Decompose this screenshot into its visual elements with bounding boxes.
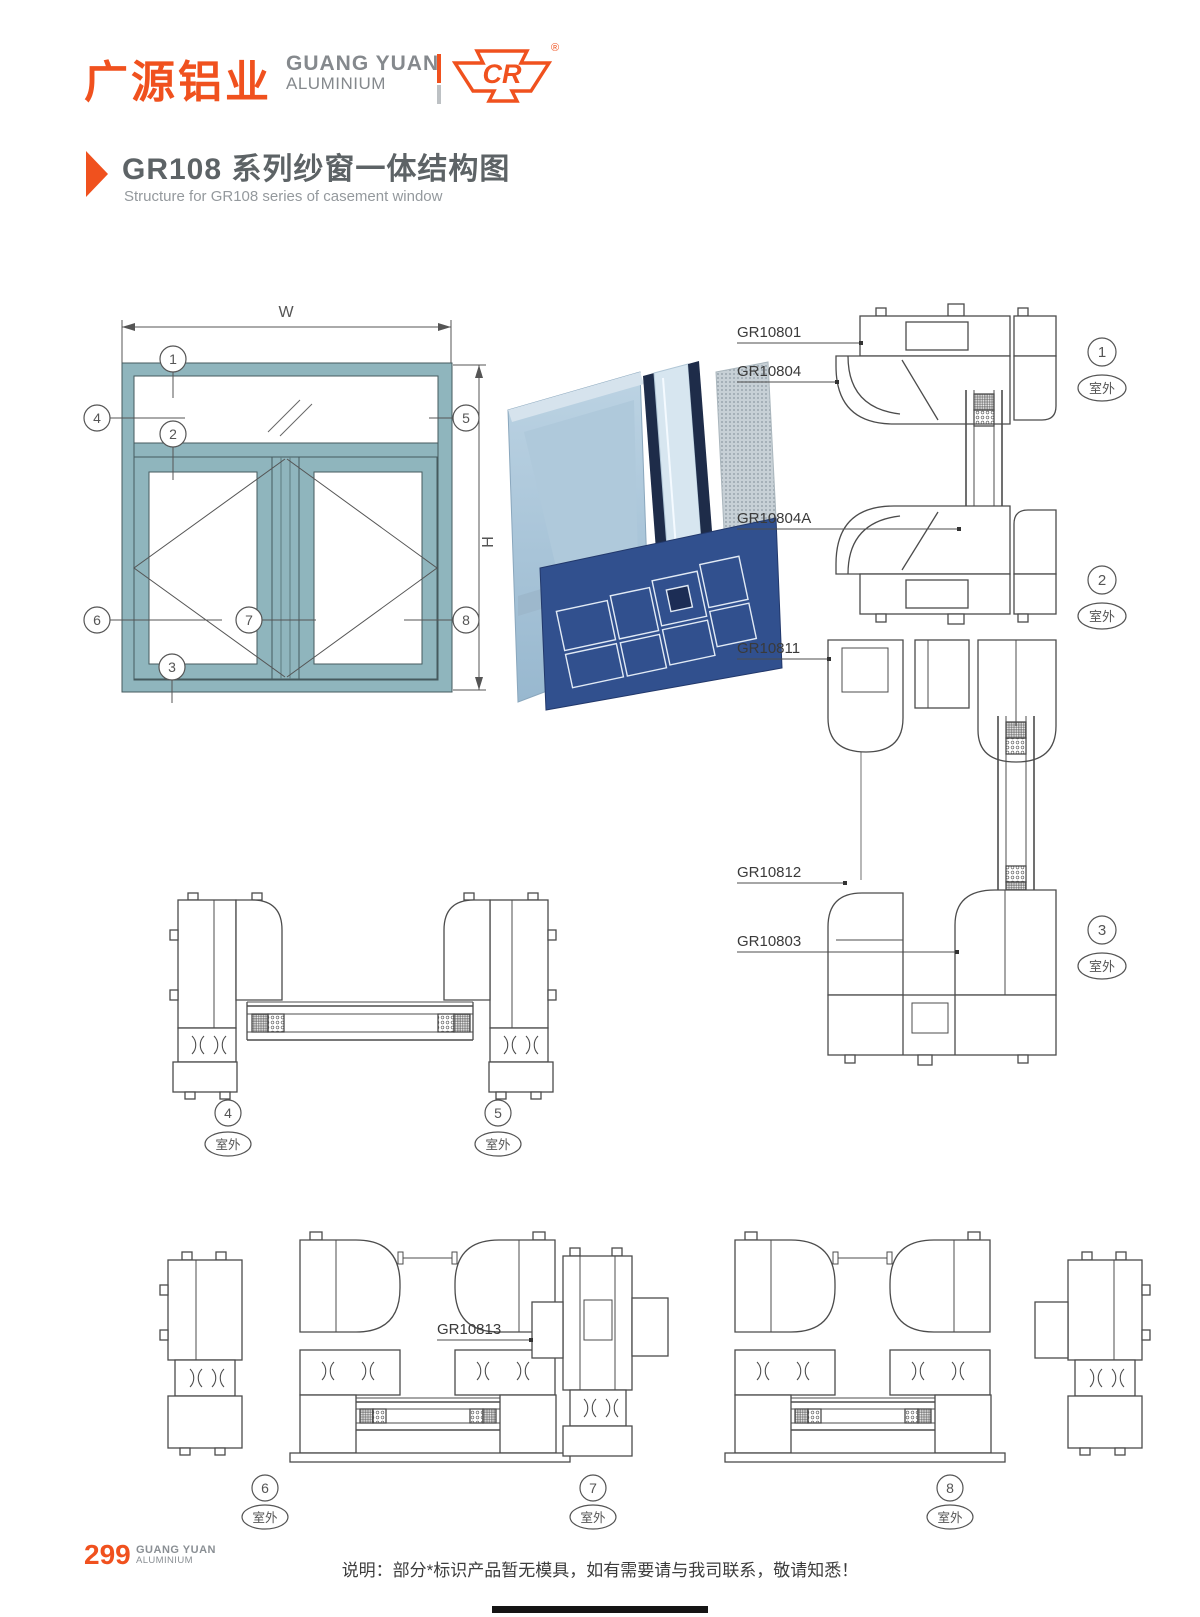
view-number-5: 5: [494, 1105, 502, 1121]
callout-5-label: 5: [462, 410, 470, 426]
view-markers-mid: 4 室外 5 室外: [205, 1100, 521, 1156]
view-number-6: 6: [261, 1480, 269, 1496]
vertical-section-views: [828, 304, 1056, 1065]
outdoor-label-1: 室外: [1089, 381, 1115, 396]
view-markers-right: 1 室外 2 室外 3 室外: [1078, 338, 1126, 979]
window-3d-render: [508, 361, 782, 710]
outdoor-label-5: 室外: [485, 1137, 511, 1152]
bottom-left-jamb: [160, 1252, 242, 1455]
part-label: GR10804: [737, 363, 801, 380]
bottom-sash-pair-2: [725, 1232, 1005, 1462]
bottom-right-jamb: [1035, 1252, 1150, 1455]
dimension-h-label: H: [480, 536, 497, 548]
view-number-2: 2: [1098, 572, 1106, 589]
callout-7-label: 7: [245, 612, 253, 628]
part-label: GR10803: [737, 933, 801, 950]
outdoor-label-2: 室外: [1089, 609, 1115, 624]
outdoor-label-4: 室外: [215, 1137, 241, 1152]
page-bottom-mark: [492, 1606, 708, 1613]
view-number-4: 4: [224, 1105, 232, 1121]
horizontal-section-top: [170, 893, 556, 1099]
callout-1-label: 1: [169, 351, 177, 367]
callout-3-label: 3: [168, 659, 176, 675]
outdoor-label-6: 室外: [252, 1510, 278, 1525]
callout-8-label: 8: [462, 612, 470, 628]
callout-2-label: 2: [169, 426, 177, 442]
view-number-8: 8: [946, 1480, 954, 1496]
center-mullion: [272, 457, 299, 679]
glazing-horizontal-2: [356, 1398, 500, 1430]
window-elevation-schematic: W H: [84, 304, 497, 703]
view-number-1: 1: [1098, 344, 1106, 361]
left-sash-glass: [149, 472, 257, 664]
section-view-4-profile: [170, 893, 282, 1099]
section-view-3: [828, 890, 1056, 1065]
view-number-3: 3: [1098, 922, 1106, 939]
outdoor-label-8: 室外: [937, 1510, 963, 1525]
view-markers-bottom: 6 室外 7 室外 8 室外: [242, 1475, 973, 1529]
glazing-horizontal-3: [791, 1398, 935, 1430]
section-view-1: [836, 304, 1056, 424]
callout-4-label: 4: [93, 410, 101, 426]
horizontal-section-bottom: [160, 1232, 1150, 1462]
part-label: GR10801: [737, 324, 801, 341]
right-sash-glass: [314, 472, 422, 664]
part-label: GR10811: [737, 640, 800, 657]
footer-note: 说明：部分*标识产品暂无模具，如有需要请与我司联系，敬请知悉！: [0, 1556, 1200, 1581]
render-screen-mesh: [716, 362, 776, 530]
outdoor-label-7: 室外: [580, 1510, 606, 1525]
glazing-horizontal-1: [247, 1002, 473, 1040]
drawing-canvas: W H: [0, 0, 1200, 1617]
bottom-sash-pair-1: [290, 1232, 570, 1462]
section-view-5-profile: [444, 893, 556, 1099]
view-number-7: 7: [589, 1480, 597, 1496]
callout-6-label: 6: [93, 612, 101, 628]
part-label: GR10813: [437, 1321, 501, 1338]
outdoor-label-3: 室外: [1089, 959, 1115, 974]
dimension-w-label: W: [278, 304, 294, 321]
part-label: GR10804A: [737, 510, 811, 527]
part-label: GR10812: [737, 864, 801, 881]
